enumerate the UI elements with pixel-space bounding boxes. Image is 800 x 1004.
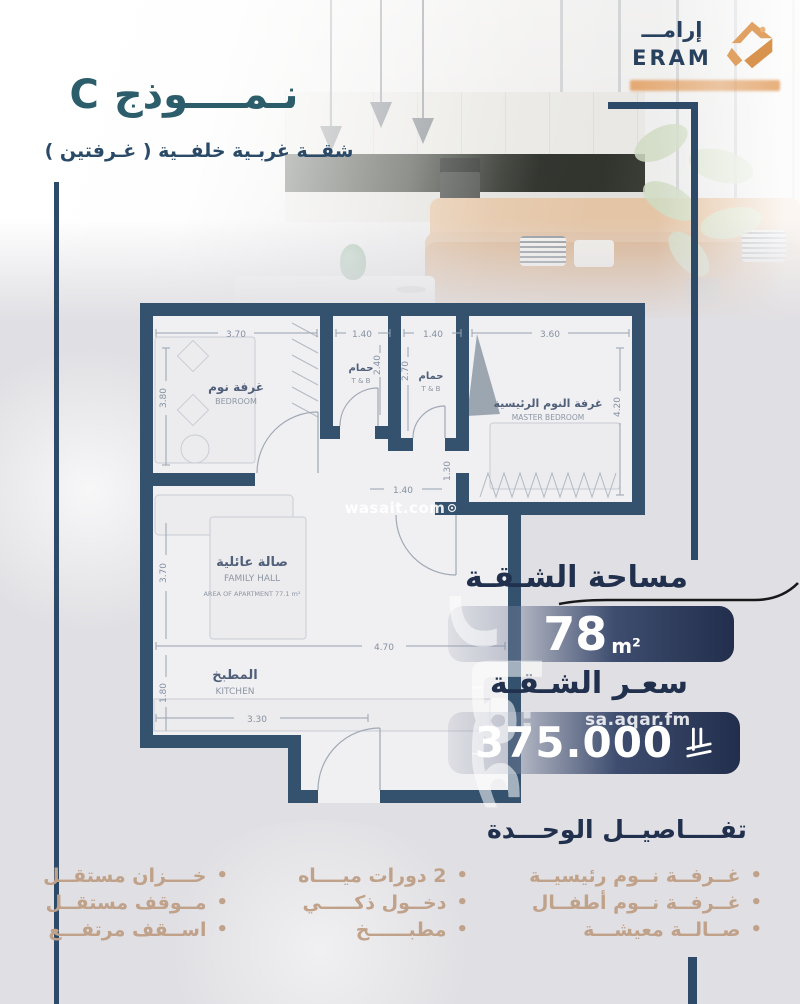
kitchen-label-ar: المطبخ	[212, 668, 257, 683]
model-subtitle: شقــة غربـية خلفــية ( غـرفتين )	[34, 140, 364, 162]
bullet-icon: •	[456, 865, 468, 886]
bedroom-label-ar: غرفة نوم	[208, 380, 264, 395]
detail-item-label: غــرفــة نــوم أطفــال	[532, 892, 741, 914]
logo-arabic-name: إرامـــ	[628, 18, 716, 42]
bath1-label-ar: حمام	[349, 363, 374, 374]
eram-logo: إرامـــ ERAM	[622, 10, 792, 106]
dim-bath2-w: 1.40	[423, 330, 443, 340]
detail-item: • 2 دورات ميــــاه	[233, 862, 468, 889]
pin-icon-dot	[451, 507, 453, 509]
detail-item-label: مطبــــــخ	[356, 919, 447, 941]
detail-item-label: دخــول ذكـــــي	[303, 892, 447, 914]
bullet-icon: •	[216, 865, 228, 886]
details-title: تفــــاصيــل الوحـــدة	[472, 815, 762, 844]
real-estate-flyer: نـمــــوذج C شقــة غربـية خلفــية ( غـرف…	[0, 0, 800, 1004]
details-column-features: • 2 دورات ميــــاه • دخــول ذكـــــي • م…	[233, 862, 468, 943]
area-unit: m²	[611, 634, 641, 662]
bullet-icon: •	[750, 865, 762, 886]
dim-kitchen-h: 1.80	[159, 683, 169, 703]
bath2-label-ar: حمام	[419, 371, 444, 382]
logo-tagline-strip	[630, 80, 780, 91]
details-column-rooms: • غــرفــة نــوم رئيسيــة • غــرفــة نــ…	[492, 862, 762, 943]
price-value: 375.000	[475, 722, 673, 764]
wasait-watermark: wasait.com	[345, 499, 446, 517]
family-label-en: FAMILY HALL	[224, 574, 280, 584]
dim-bath1-w: 1.40	[352, 330, 372, 340]
dim-bath1-h: 2.40	[373, 355, 383, 375]
bedroom-label-en: BEDROOM	[215, 397, 257, 406]
detail-item-label: صــالــة معيشـــة	[583, 919, 740, 941]
detail-item-label: 2 دورات ميــــاه	[298, 865, 446, 887]
detail-item-label: اســقف مرتفـــع	[49, 919, 207, 941]
bath1-label-en: T & B	[351, 377, 371, 385]
saudi-riyal-icon	[685, 727, 713, 759]
bullet-icon: •	[456, 919, 468, 940]
price-value-pill: 375.000	[448, 712, 740, 774]
master-label-ar: غرفة النوم الرئيسية	[494, 397, 603, 410]
detail-item: • خــــزان مستقــل	[28, 862, 228, 889]
chair	[181, 435, 209, 463]
bullet-icon: •	[216, 892, 228, 913]
dim-bedroom-h: 3.80	[159, 388, 169, 408]
detail-item-label: خــــزان مستقــل	[43, 865, 206, 887]
bullet-icon: •	[750, 919, 762, 940]
detail-item-label: غــرفــة نــوم رئيسيــة	[529, 865, 740, 887]
master-bed	[490, 423, 620, 489]
detail-item: • غــرفــة نــوم أطفــال	[492, 889, 762, 916]
kitchen-label-en: KITCHEN	[216, 687, 255, 697]
bath2-label-en: T & B	[421, 385, 441, 393]
detail-item: • دخــول ذكـــــي	[233, 889, 468, 916]
right-frame-horizontal	[608, 102, 698, 109]
detail-item: • صــالــة معيشـــة	[492, 916, 762, 943]
area-value-pill: 78 m²	[448, 606, 734, 662]
bullet-icon: •	[456, 892, 468, 913]
right-frame-vertical	[691, 102, 698, 560]
bullet-icon: •	[216, 919, 228, 940]
dim-bath2-h: 2.70	[401, 361, 411, 381]
detail-item: • مطبــــــخ	[233, 916, 468, 943]
kitchen-counter-plan	[154, 699, 490, 731]
dim-family-w: 4.70	[374, 643, 394, 653]
master-label-en: MASTER BEDROOM	[512, 413, 584, 422]
detail-item: • مــوقف مستقــل	[28, 889, 228, 916]
model-title: نـمــــوذج C	[34, 72, 334, 118]
dim-hall-w: 1.40	[393, 486, 413, 496]
eram-logo-icon	[722, 16, 784, 74]
dim-family-h: 3.70	[159, 563, 169, 583]
area-value: 78	[543, 611, 607, 657]
family-label-ar: صالة عائلية	[216, 555, 288, 570]
family-area-note: AREA OF APARTMENT 77.1 m²	[203, 590, 300, 598]
detail-item: • اســقف مرتفـــع	[28, 916, 228, 943]
logo-latin-name: ERAM	[628, 46, 716, 70]
dim-bedroom-w: 3.70	[226, 330, 246, 340]
dim-master-h: 4.20	[613, 397, 623, 417]
dim-master-w: 3.60	[540, 330, 560, 340]
price-title: سعـر الشـقـة	[490, 666, 688, 701]
detail-item-label: مــوقف مستقــل	[46, 892, 207, 914]
bottom-accent-bar	[688, 957, 697, 1004]
detail-item: • غــرفــة نــوم رئيسيــة	[492, 862, 762, 889]
dim-kitchen-w: 3.30	[247, 715, 267, 725]
dim-corridor: 1.30	[443, 461, 453, 481]
details-column-extras: • خــــزان مستقــل • مــوقف مستقــل • اس…	[28, 862, 228, 943]
bullet-icon: •	[750, 892, 762, 913]
